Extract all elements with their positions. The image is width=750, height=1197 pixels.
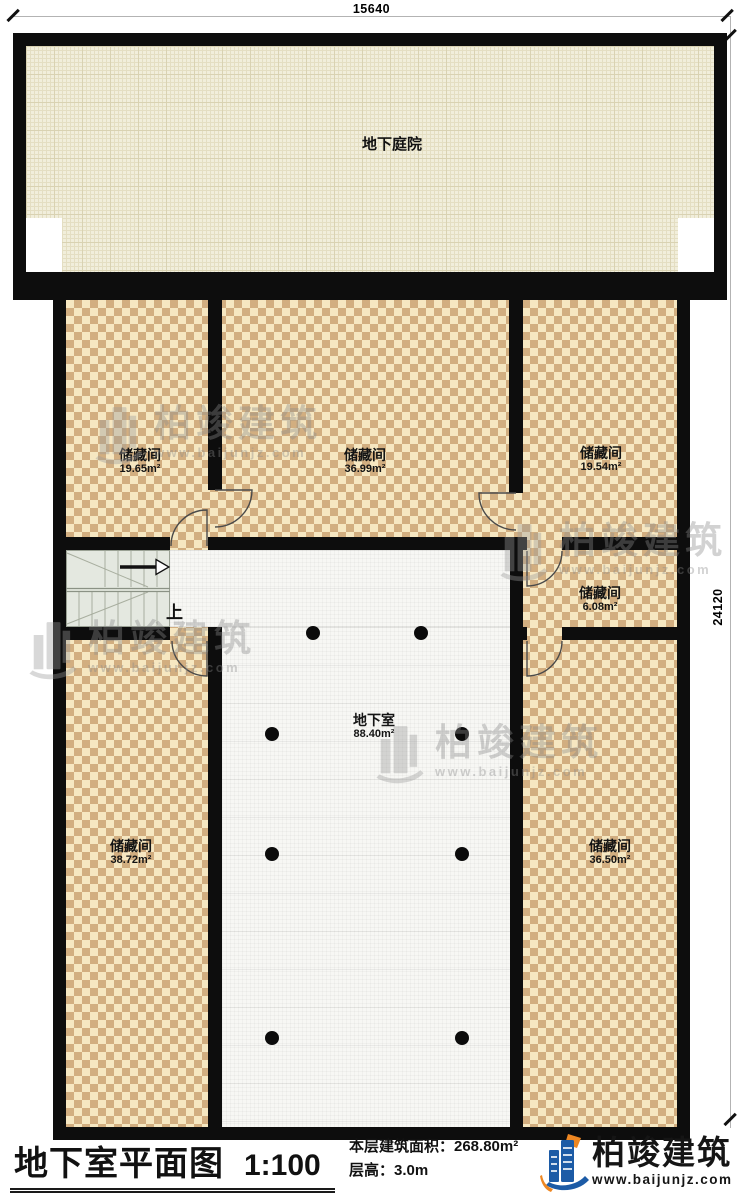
room-area: 38.72m² bbox=[110, 854, 152, 867]
room-label-basement: 地下室 88.40m² bbox=[353, 712, 395, 741]
brand-name: 柏竣建筑 bbox=[592, 1136, 733, 1169]
column-dot bbox=[265, 727, 279, 741]
drawing-title: 地下室平面图 bbox=[14, 1145, 224, 1183]
room-area: 19.65m² bbox=[119, 463, 161, 476]
brand-block: 柏竣建筑 www.baijunjz.com bbox=[592, 1136, 733, 1187]
room-name: 储藏间 bbox=[579, 585, 621, 601]
brand-logo-icon bbox=[540, 1133, 590, 1193]
drawing-title-block: 地下室平面图1:100 bbox=[10, 1136, 335, 1193]
column-dot bbox=[455, 727, 469, 741]
floor-area-text: 本层建筑面积：268.80m² bbox=[349, 1139, 518, 1154]
room-label-storage-6: 储藏间 36.50m² bbox=[589, 838, 631, 867]
column-dot bbox=[414, 626, 428, 640]
room-area: 36.99m² bbox=[344, 463, 386, 476]
drawing-specs: 本层建筑面积：268.80m² 层高：3.0m bbox=[349, 1139, 518, 1178]
door-arc bbox=[479, 493, 516, 530]
room-area: 19.54m² bbox=[580, 461, 622, 474]
column-dot bbox=[455, 1031, 469, 1045]
column-dot bbox=[265, 847, 279, 861]
door-arc bbox=[172, 641, 207, 676]
room-name: 储藏间 bbox=[110, 838, 152, 854]
room-label-storage-1: 储藏间 19.65m² bbox=[119, 447, 161, 476]
room-name: 储藏间 bbox=[589, 838, 631, 854]
room-label-storage-4: 储藏间 6.08m² bbox=[579, 585, 621, 614]
room-name: 储藏间 bbox=[344, 447, 386, 463]
room-label-storage-2: 储藏间 36.99m² bbox=[344, 447, 386, 476]
room-area: 88.40m² bbox=[353, 728, 395, 741]
door-arc bbox=[215, 490, 252, 527]
column-dot bbox=[265, 1031, 279, 1045]
room-label-storage-3: 储藏间 19.54m² bbox=[580, 445, 622, 474]
room-name: 地下室 bbox=[353, 712, 395, 728]
brand-website: www.baijunjz.com bbox=[592, 1172, 733, 1187]
floor-plan-page: 15640 24120 地下庭院 bbox=[0, 0, 750, 1197]
column-dot bbox=[455, 847, 469, 861]
room-name: 储藏间 bbox=[580, 445, 622, 461]
column-dot bbox=[306, 626, 320, 640]
room-area: 36.50m² bbox=[589, 854, 631, 867]
room-name: 储藏间 bbox=[119, 447, 161, 463]
drawing-scale: 1:100 bbox=[244, 1149, 321, 1182]
door-arc bbox=[171, 510, 207, 546]
floor-height-text: 层高：3.0m bbox=[349, 1163, 518, 1178]
door-swings bbox=[0, 0, 750, 1197]
room-label-storage-5: 储藏间 38.72m² bbox=[110, 838, 152, 867]
door-arc bbox=[527, 551, 562, 586]
door-arc bbox=[527, 641, 562, 676]
room-area: 6.08m² bbox=[579, 601, 621, 614]
